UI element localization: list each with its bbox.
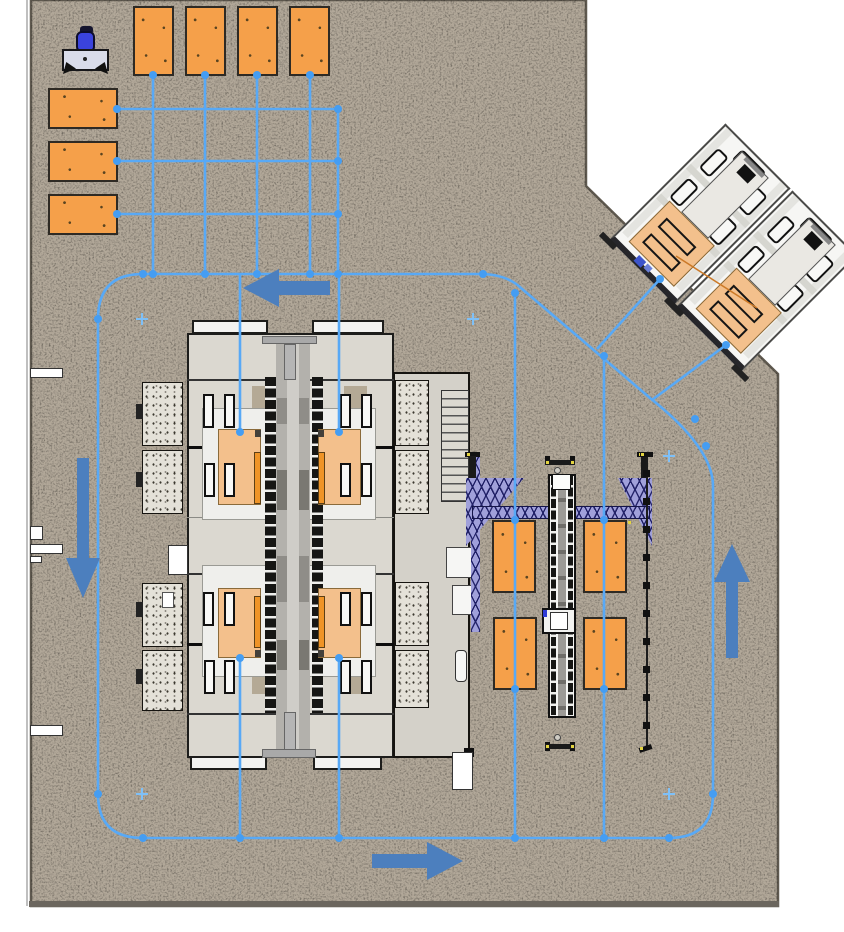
bay-slot-13 (224, 660, 235, 694)
fixture-top-ydot-l (546, 461, 549, 464)
left-module-nub-0 (136, 404, 143, 419)
pallet-edge-strip-3 (318, 596, 325, 648)
bay-slot-8 (203, 592, 214, 626)
machine-left-opening (168, 545, 188, 575)
pallet-notch-2 (255, 650, 261, 657)
pallet-top-1[interactable] (185, 6, 226, 76)
pallet-edge-strip-1 (318, 452, 325, 504)
left-module-0 (142, 382, 183, 446)
left-module-nub-3 (136, 669, 143, 684)
machine-top-stem (284, 344, 296, 380)
vent-bottom-left (190, 756, 267, 770)
gantry-carriage-plate (550, 612, 568, 630)
pallet-notch-3 (318, 650, 324, 657)
vent-top-left (192, 320, 268, 334)
annex-module-2 (395, 582, 429, 646)
bay-slot-1 (224, 394, 235, 428)
vent-bottom-right (313, 756, 382, 770)
annex-door-panel (455, 650, 467, 682)
pallet-left-5[interactable] (48, 141, 118, 182)
truss-post-left (469, 456, 476, 478)
pallet-notch-0 (255, 430, 261, 437)
am-front-rail-bottom (731, 364, 749, 382)
pallet-top-0[interactable] (133, 6, 174, 76)
bay-slot-14 (340, 660, 351, 694)
gantry-rail-left-track (551, 476, 556, 716)
pallet-gantry-7[interactable] (492, 520, 536, 593)
fixture-bottom-ydot-l (546, 745, 549, 748)
gantry-carriage-blue-mark (543, 610, 547, 617)
pallet-gantry-9[interactable] (493, 617, 537, 690)
machine-left-small-box (162, 592, 174, 608)
machine-top-bar (262, 336, 317, 344)
bay-slot-2 (340, 394, 351, 428)
fixture-bottom-ydot-r (571, 745, 574, 748)
pallet-left-4[interactable] (48, 88, 118, 129)
bay-slot-9 (224, 592, 235, 626)
conveyor-column-left (265, 377, 276, 713)
bay-slot-3 (361, 394, 372, 428)
pallet-left-6[interactable] (48, 194, 118, 235)
fence-post-2 (643, 526, 650, 533)
bay-slot-10 (340, 592, 351, 626)
left-module-1 (142, 450, 183, 514)
fixture-bottom-circle (554, 734, 561, 741)
bay-slot-12 (204, 660, 215, 694)
fence-top-ydot (641, 453, 644, 456)
wall-notch-lower (30, 725, 63, 736)
pallet-gantry-10[interactable] (583, 617, 627, 690)
fence-post-4 (643, 582, 650, 589)
bay-slot-0 (203, 394, 214, 428)
fence-bottom-ydot (640, 747, 643, 750)
bay-slot-7 (361, 463, 372, 497)
conveyor-column-right (312, 377, 323, 713)
bay-slot-11 (361, 592, 372, 626)
gantry-rail-right-track (568, 476, 573, 716)
pallet-notch-1 (318, 430, 324, 437)
fence-post-5 (643, 610, 650, 617)
machine-bottom-stem (284, 712, 296, 750)
fence-post-8 (643, 694, 650, 701)
gantry-rail-top-cap (552, 474, 571, 490)
gantry-rail-center (558, 476, 566, 716)
pallet-edge-strip-2 (254, 596, 261, 648)
left-module-nub-1 (136, 472, 143, 487)
equipment-layer (0, 0, 844, 932)
fence-post-0 (643, 470, 650, 477)
wall-door-bar (30, 544, 63, 554)
annex-module-0 (395, 380, 429, 446)
fence-post-3 (643, 554, 650, 561)
bay-slot-5 (224, 463, 235, 497)
bay-slot-6 (340, 463, 351, 497)
pallet-top-2[interactable] (237, 6, 278, 76)
annex-module-1 (395, 450, 429, 514)
pallet-gantry-8[interactable] (583, 520, 627, 593)
bay-slot-15 (361, 660, 372, 694)
pallet-edge-strip-0 (254, 452, 261, 504)
truss-ydot-1 (467, 453, 470, 456)
wall-door-post-bottom (30, 556, 42, 563)
fence-post-6 (643, 638, 650, 645)
agv-center-mark (83, 57, 87, 61)
fence-post-7 (643, 666, 650, 673)
vent-top-right (312, 320, 384, 334)
left-module-nub-2 (136, 602, 143, 617)
pallet-top-3[interactable] (289, 6, 330, 76)
wall-notch-upper (30, 368, 63, 378)
annex-module-3 (395, 650, 429, 708)
truss-ydot-3 (628, 521, 631, 524)
conveyor-center-rail (287, 336, 299, 757)
wall-door-post-top (30, 526, 43, 540)
fence-post-1 (643, 498, 650, 505)
machine-stairs (441, 390, 469, 502)
fixture-top-circle (554, 467, 561, 474)
am-front-rail-top (599, 232, 617, 250)
bay-slot-4 (204, 463, 215, 497)
fence-post-9 (643, 722, 650, 729)
floor-plan-canvas (0, 0, 844, 932)
machine-south-cabinet (452, 752, 473, 790)
left-module-3 (142, 650, 183, 711)
fixture-top-ydot-r (571, 461, 574, 464)
machine-bottom-bar (262, 749, 316, 758)
